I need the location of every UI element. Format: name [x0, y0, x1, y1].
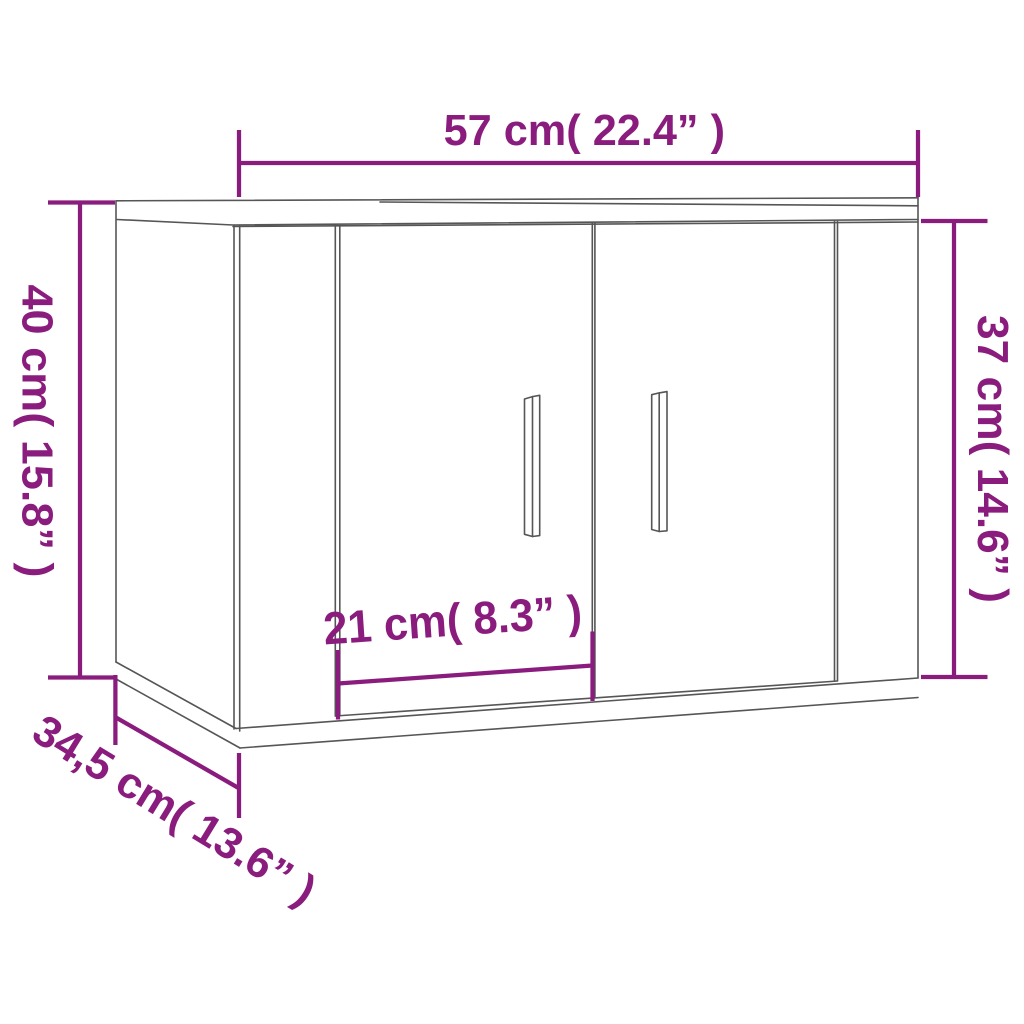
- svg-text:57 cm( 22.4” ): 57 cm( 22.4” ): [444, 107, 725, 155]
- svg-text:40 cm( 15.8” ): 40 cm( 15.8” ): [13, 285, 61, 578]
- svg-text:37 cm( 14.6” ): 37 cm( 14.6” ): [968, 315, 1016, 603]
